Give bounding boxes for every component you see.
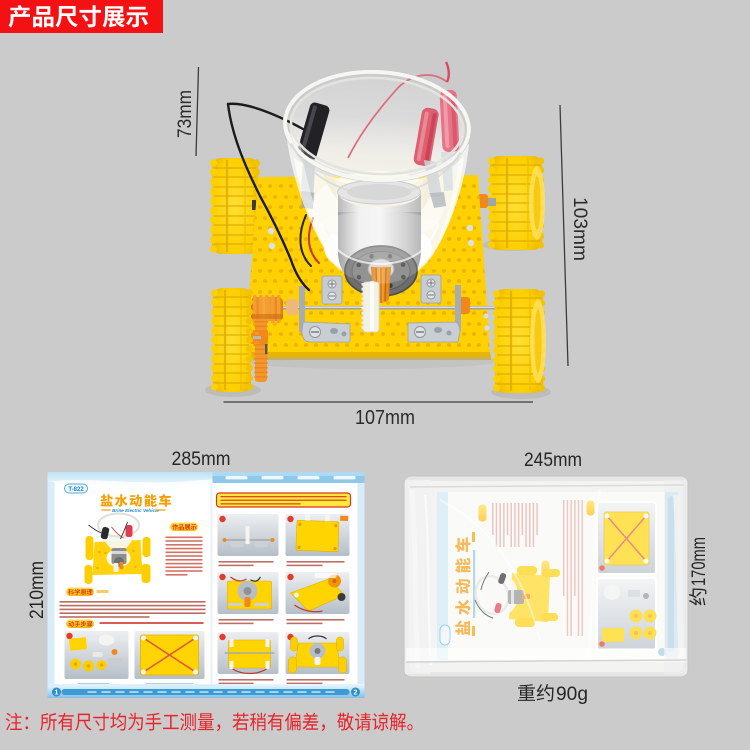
svg-text:1: 1 <box>55 690 59 697</box>
svg-text:103mm: 103mm <box>569 197 591 261</box>
svg-text:T-822: T-822 <box>68 487 84 493</box>
svg-text:107mm: 107mm <box>355 407 415 429</box>
svg-text:Brine Electric Vehicle: Brine Electric Vehicle <box>112 508 159 513</box>
svg-text:285mm: 285mm <box>172 448 231 470</box>
svg-text:245mm: 245mm <box>524 449 582 471</box>
svg-text:2: 2 <box>354 690 358 697</box>
svg-text:210mm: 210mm <box>26 561 48 619</box>
svg-text:73mm: 73mm <box>174 90 196 138</box>
svg-text:170mm: 170mm <box>688 537 710 586</box>
svg-text:90g: 90g <box>556 683 588 705</box>
